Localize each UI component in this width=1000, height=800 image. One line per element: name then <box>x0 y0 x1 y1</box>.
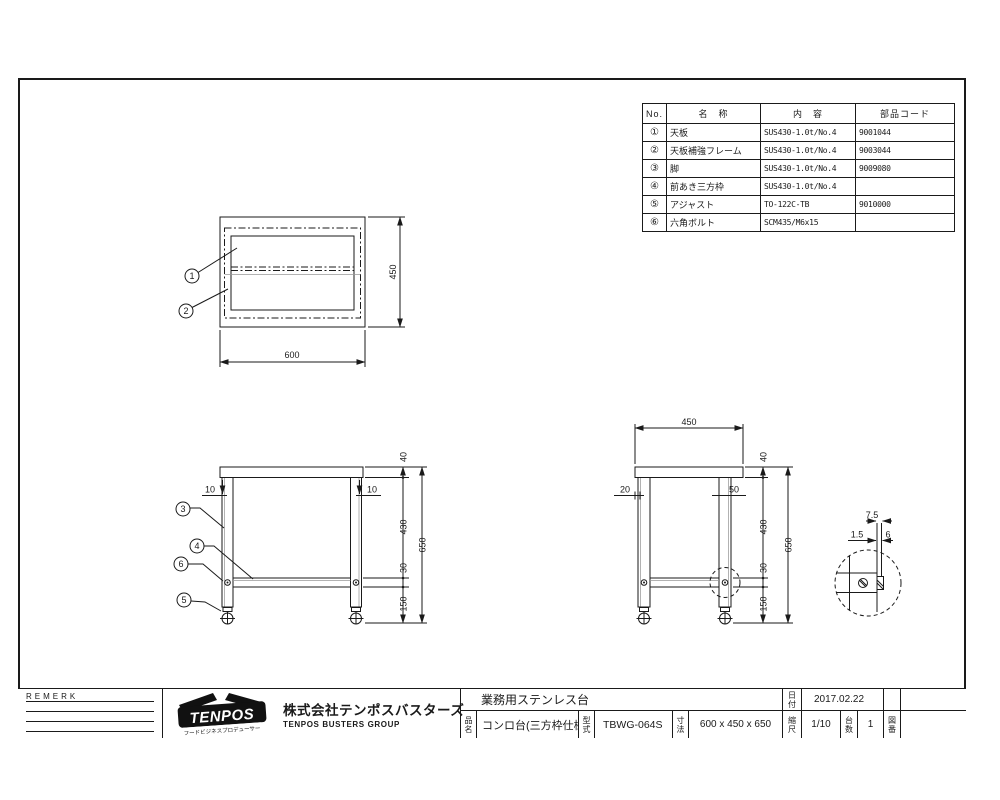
front-dim-leg: 430 <box>399 519 409 534</box>
col-spec: 内 容 <box>761 104 856 124</box>
balloon-2: 2 <box>179 289 228 318</box>
scale-label: 縮尺 <box>782 711 801 738</box>
table-row: ⑤ アジャスト TO-122C-TB 9010000 <box>643 196 955 214</box>
part-spec: SUS430-1.0t/No.4 <box>761 160 856 178</box>
detail-view: 7.5 1.5 6 <box>835 510 901 616</box>
balloon-3-number: 3 <box>180 504 185 514</box>
model-number: TBWG-064S <box>594 711 672 738</box>
remark-box: REMERK <box>18 689 162 738</box>
table-row: ⑥ 六角ボルト SCM435/M6x15 <box>643 214 955 232</box>
balloon-3: 3 <box>176 502 224 528</box>
part-no: ③ <box>643 160 667 178</box>
qty-value: 1 <box>857 711 883 738</box>
part-name: 前あき三方枠 <box>667 178 761 196</box>
balloon-6: 6 <box>174 557 223 581</box>
part-no: ⑥ <box>643 214 667 232</box>
balloon-1-number: 1 <box>189 271 194 281</box>
date-value: 2017.02.22 <box>801 689 883 711</box>
balloon-5: 5 <box>177 593 221 611</box>
title-block: REMERK TENPOS フードビジネスプロデューサー 株式会社テンポスバスタ… <box>18 688 966 737</box>
top-dim-width: 600 <box>284 350 299 360</box>
empty-cell <box>883 689 900 711</box>
part-code: 9003044 <box>856 142 955 160</box>
side-view: 450 20 50 40 430 30 150 650 <box>614 417 794 625</box>
top-dim-depth: 450 <box>388 264 398 279</box>
parts-table-header: No. 名 称 内 容 部品コード <box>643 104 955 124</box>
detail-dim-a: 7.5 <box>866 510 879 520</box>
col-no: No. <box>643 104 667 124</box>
side-dim-total: 650 <box>784 537 794 552</box>
table-row: ② 天板補強フレーム SUS430-1.0t/No.4 9003044 <box>643 142 955 160</box>
remark-label: REMERK <box>26 692 154 702</box>
part-name: 天板 <box>667 124 761 142</box>
company-identity: 株式会社テンポスバスターズ TENPOS BUSTERS GROUP <box>283 699 464 729</box>
size-label: 寸法 <box>672 711 688 738</box>
part-spec: SUS430-1.0t/No.4 <box>761 178 856 196</box>
col-code: 部品コード <box>856 104 955 124</box>
front-dim-inset-left: 10 <box>205 485 215 495</box>
part-code: 9010000 <box>856 196 955 214</box>
part-name: 六角ボルト <box>667 214 761 232</box>
part-no: ① <box>643 124 667 142</box>
remark-blank-line <box>26 702 154 712</box>
empty-cell <box>900 689 966 711</box>
balloon-5-number: 5 <box>181 595 186 605</box>
drawing-sheet: 1 2 600 450 <box>0 0 1000 800</box>
tenpos-logo: TENPOS フードビジネスプロデューサー <box>171 690 273 738</box>
company-box: TENPOS フードビジネスプロデューサー 株式会社テンポスバスターズ TENP… <box>162 689 460 738</box>
part-code <box>856 178 955 196</box>
remark-blank-line <box>26 712 154 722</box>
front-view: 10 10 3 4 6 5 <box>174 452 428 625</box>
model-label: 型式 <box>578 711 594 738</box>
company-name: 株式会社テンポスバスターズ <box>283 699 464 719</box>
balloon-6-number: 6 <box>178 559 183 569</box>
side-dim-foot: 150 <box>759 596 769 611</box>
balloon-4-number: 4 <box>194 541 199 551</box>
front-dim-total: 650 <box>418 537 428 552</box>
side-dim-top: 40 <box>759 452 769 462</box>
balloon-1: 1 <box>185 248 237 283</box>
balloon-2-number: 2 <box>183 306 188 316</box>
side-dim-frame: 30 <box>759 563 769 573</box>
side-dim-edge: 20 <box>620 485 630 495</box>
front-dim-frame: 30 <box>399 563 409 573</box>
remark-blank-line <box>26 722 154 732</box>
table-row: ④ 前あき三方枠 SUS430-1.0t/No.4 <box>643 178 955 196</box>
front-dim-inset-right: 10 <box>367 485 377 495</box>
top-view: 1 2 600 450 <box>179 217 405 367</box>
qty-label: 台数 <box>840 711 857 738</box>
part-code <box>856 214 955 232</box>
part-spec: SUS430-1.0t/No.4 <box>761 124 856 142</box>
side-dim-leg: 430 <box>759 519 769 534</box>
product-name: コンロ台(三方枠仕様) <box>476 711 578 738</box>
part-code: 9009080 <box>856 160 955 178</box>
col-name: 名 称 <box>667 104 761 124</box>
side-dim-width: 450 <box>681 417 696 427</box>
product-category: 業務用ステンレス台 <box>460 689 782 711</box>
part-name: アジャスト <box>667 196 761 214</box>
detail-dim-b: 1.5 <box>851 530 864 540</box>
part-spec: SCM435/M6x15 <box>761 214 856 232</box>
dwgno-value <box>900 711 966 738</box>
detail-bolt <box>859 579 868 588</box>
table-row: ① 天板 SUS430-1.0t/No.4 9001044 <box>643 124 955 142</box>
dwgno-label: 図番 <box>883 711 900 738</box>
table-row: ③ 脚 SUS430-1.0t/No.4 9009080 <box>643 160 955 178</box>
part-name: 天板補強フレーム <box>667 142 761 160</box>
parts-table: No. 名 称 内 容 部品コード ① 天板 SUS430-1.0t/No.4 … <box>642 103 955 232</box>
part-no: ④ <box>643 178 667 196</box>
front-dim-foot: 150 <box>399 596 409 611</box>
part-spec: TO-122C-TB <box>761 196 856 214</box>
side-dim-legwidth: 50 <box>729 485 739 495</box>
detail-nut <box>877 577 884 590</box>
part-spec: SUS430-1.0t/No.4 <box>761 142 856 160</box>
overall-size: 600 x 450 x 650 <box>688 711 782 738</box>
detail-dim-c: 6 <box>885 530 890 540</box>
front-dim-top: 40 <box>399 452 409 462</box>
part-code: 9001044 <box>856 124 955 142</box>
part-name: 脚 <box>667 160 761 178</box>
product-name-label: 品名 <box>460 711 476 738</box>
date-label: 日付 <box>782 689 801 711</box>
scale-value: 1/10 <box>801 711 840 738</box>
part-no: ② <box>643 142 667 160</box>
company-subtitle: TENPOS BUSTERS GROUP <box>283 720 464 729</box>
part-no: ⑤ <box>643 196 667 214</box>
